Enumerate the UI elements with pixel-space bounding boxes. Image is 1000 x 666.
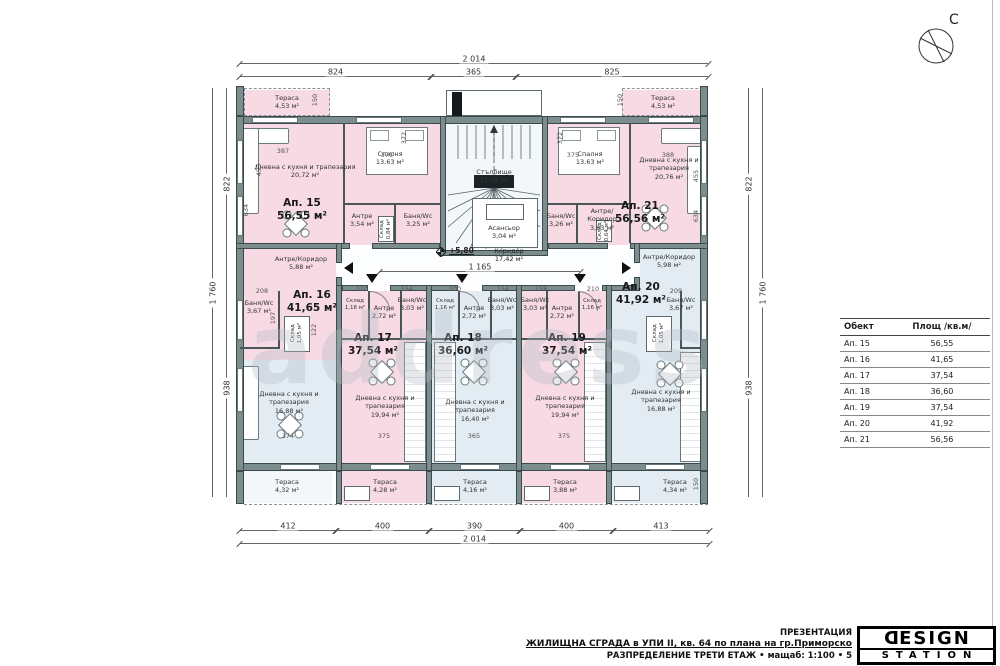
inner-dim: 210: [356, 285, 368, 293]
dim-top-1: 824: [240, 76, 431, 77]
apartment-area: 56,55 м²: [260, 210, 344, 223]
inner-dim: 372: [400, 132, 408, 144]
room-area: 16,88 м²: [622, 405, 700, 413]
dim-top-2: 365: [431, 76, 516, 77]
room-label-stairs: Стълбище 12,58 м²: [454, 168, 534, 185]
inner-dim: 197: [269, 312, 277, 324]
dim-label: 938: [745, 377, 754, 398]
room-name: Спалня: [555, 150, 625, 158]
room-area: 4,32 м²: [256, 486, 318, 494]
room-name: Коридор: [480, 247, 538, 255]
inner-dim: 455: [692, 170, 700, 182]
dim-label: 2 014: [460, 535, 489, 544]
titleblock-sheet: РАЗПРЕДЕЛЕНИЕ ТРЕТИ ЕТАЖ • мащаб: 1:100 …: [452, 651, 852, 661]
room-area: 2,72 м²: [366, 312, 402, 320]
room-label-storage-15: Склад 0,84 м²: [379, 214, 393, 244]
dim-label: 822: [223, 173, 232, 194]
room-area: 17,42 м²: [480, 255, 538, 263]
room-label-living-15: Дневна с кухня и трапезария 20,72 м²: [252, 163, 358, 180]
partition-wall: [343, 203, 440, 205]
dining-table-icon: [457, 355, 491, 389]
inner-dim: 455: [255, 164, 263, 176]
window: [237, 368, 243, 412]
legend-header-area: Площ /кв.м/: [894, 319, 990, 336]
room-name: Антре/Коридор: [270, 255, 332, 263]
dim-top-3: 825: [516, 76, 708, 77]
compass-north-label: С: [949, 12, 959, 28]
room-label-corridor: Коридор 17,42 м²: [480, 247, 538, 264]
wall-segment: [630, 243, 708, 249]
wall-segment: [606, 471, 612, 504]
dim-right-1: 822: [748, 88, 749, 279]
room-area: 2,72 м²: [544, 312, 580, 320]
room-label-terrace-21: Тераса 4,53 м²: [628, 94, 698, 111]
room-label-antre-15: Антре 3,54 м²: [344, 212, 380, 229]
entry-arrow-icon: [344, 262, 353, 274]
apartment-19-label: Ап. 19 37,54 м²: [538, 332, 596, 358]
room-area: 16,40 м²: [438, 415, 512, 423]
room-name: Тераса: [256, 478, 318, 486]
dim-label: 822: [745, 173, 754, 194]
table-row: Ап. 1556,55: [840, 336, 990, 352]
inner-dim: 122: [310, 324, 318, 336]
room-name: Асансьор: [476, 224, 532, 232]
dim-label: 825: [601, 68, 622, 77]
room-area: 3,03 м²: [487, 304, 517, 312]
room-name: Баня/Wc: [660, 296, 702, 304]
entry-arrow-icon: [622, 262, 631, 274]
cell-area: 41,65: [894, 352, 990, 368]
inner-dim: 375: [558, 432, 570, 440]
room-label-storage-16: Склад 1,05 м²: [290, 318, 304, 348]
room-name: Дневна с кухня и трапезария: [348, 394, 422, 411]
dim-right-2: 938: [748, 279, 749, 497]
room-area: 4,28 м²: [356, 486, 414, 494]
inner-dim: 158: [535, 285, 547, 293]
room-name: Антре: [344, 212, 380, 220]
room-name: Тераса: [536, 478, 594, 486]
titleblock-project: ЖИЛИЩНА СГРАДА в УПИ II, кв. 64 по плана…: [452, 639, 852, 649]
room-area: 3,88 м²: [536, 486, 594, 494]
dim-label: 365: [463, 68, 484, 77]
room-area: 2,72 м²: [456, 312, 492, 320]
apartment-id: Ап. 18: [434, 332, 492, 345]
dim-left-total: 1 760: [212, 88, 213, 497]
cell-apartment: Ап. 16: [840, 352, 894, 368]
inner-dim: 150: [311, 94, 319, 106]
dining-table-icon: [653, 357, 687, 391]
partition-wall: [240, 347, 280, 349]
titleblock-presentation: ПРЕЗЕНТАЦИЯ: [452, 628, 852, 638]
terrace-door: [280, 464, 320, 470]
apartment-area: 37,54 м²: [538, 345, 596, 358]
apartment-id: Ап. 17: [344, 332, 402, 345]
room-label-living-16: Дневна с кухня и трапезария 16,88 м²: [250, 390, 328, 415]
room-name: Дневна с кухня и трапезария: [250, 390, 328, 407]
cell-apartment: Ап. 18: [840, 384, 894, 400]
room-label-living-17: Дневна с кухня и трапезария 19,94 м²: [348, 394, 422, 419]
apartment-area: 56,56 м²: [600, 213, 680, 226]
room-area: 12,58 м²: [454, 176, 534, 184]
inner-dim: 154: [497, 285, 509, 293]
dim-label: 412: [277, 522, 298, 531]
room-label-bath-17: Баня/Wc 3,03 м²: [397, 296, 427, 313]
room-label-storage-17: Склад 1,16 м²: [341, 298, 369, 312]
window: [252, 117, 298, 123]
apartment-16-label: Ап. 16 41,65 м²: [286, 289, 338, 315]
dim-bottom-5: 413: [613, 530, 709, 531]
wall-segment: [426, 285, 432, 471]
table-row: Ап. 2041,92: [840, 416, 990, 432]
room-area: 1,05 м²: [297, 318, 304, 348]
room-area: 3,54 м²: [344, 220, 380, 228]
room-label-antre-19: Антре 2,72 м²: [544, 304, 580, 321]
cell-area: 41,92: [894, 416, 990, 432]
inner-dim: 387: [277, 147, 289, 155]
window: [648, 117, 694, 123]
inner-dim: 210: [587, 285, 599, 293]
room-area: 19,94 м²: [528, 411, 602, 419]
entry-arrow-icon: [574, 274, 586, 283]
room-name: Тераса: [356, 478, 414, 486]
room-area: 20,72 м²: [252, 171, 358, 179]
room-area: 3,25 м²: [398, 220, 438, 228]
cell-apartment: Ап. 19: [840, 400, 894, 416]
room-area: 0,84 м²: [386, 214, 393, 244]
cell-area: 56,56: [894, 432, 990, 448]
room-label-terrace-18: Тераса 4,16 м²: [446, 478, 504, 495]
room-label-storage-20: Склад 1,05 м²: [652, 318, 666, 348]
dim-label: 400: [556, 522, 577, 531]
room-label-terrace-16: Тераса 4,32 м²: [256, 478, 318, 495]
room-area: 3,26 м²: [546, 220, 576, 228]
wall-segment: [336, 471, 342, 504]
room-label-bath-15: Баня/Wc 3,25 м²: [398, 212, 438, 229]
room-area: 13,63 м²: [555, 158, 625, 166]
logo-design-text: DESIGN: [860, 629, 993, 648]
apartment-id: Ап. 21: [600, 200, 680, 213]
wall-segment: [440, 116, 446, 256]
inner-dim: 365: [468, 432, 480, 440]
wall-segment: [336, 243, 342, 263]
inner-dim: 375: [381, 151, 393, 159]
inner-dim: 388: [662, 151, 674, 159]
table-row: Ап. 1836,60: [840, 384, 990, 400]
room-area: 1,05 м²: [659, 318, 666, 348]
room-area: 13,63 м²: [355, 158, 425, 166]
room-name: Стълбище: [454, 168, 534, 176]
terrace-door: [370, 464, 410, 470]
sheet-border-line: [992, 0, 993, 666]
dim-bottom-4: 400: [520, 530, 613, 531]
cell-apartment: Ап. 15: [840, 336, 894, 352]
window: [237, 140, 243, 184]
inner-dim: 150: [616, 94, 624, 106]
room-label-elevator: Асансьор 3,04 м²: [476, 224, 532, 241]
room-area: 3,04 м²: [476, 232, 532, 240]
table-row: Ап. 1937,54: [840, 400, 990, 416]
room-label-bath-18: Баня/Wc 3,03 м²: [487, 296, 517, 313]
dim-bottom-total: 2 014: [240, 543, 709, 544]
cell-apartment: Ап. 21: [840, 432, 894, 448]
inner-dim: 374: [282, 432, 294, 440]
wall-segment: [700, 86, 708, 116]
room-label-hall-20: Антре/Коридор 5,98 м²: [640, 253, 698, 270]
apartment-id: Ап. 15: [260, 197, 344, 210]
wall-segment: [426, 471, 432, 504]
cell-area: 37,54: [894, 400, 990, 416]
terrace-outline: [244, 504, 708, 505]
dim-label: 413: [650, 522, 671, 531]
room-name: Баня/Wc: [238, 299, 280, 307]
room-area: 3,67 м²: [660, 304, 702, 312]
window: [560, 117, 606, 123]
apartment-17-label: Ап. 17 37,54 м²: [344, 332, 402, 358]
wall-segment: [236, 86, 244, 116]
room-label-hall-16: Антре/Коридор 5,88 м²: [270, 255, 332, 272]
room-name: Тераса: [628, 94, 698, 102]
window: [356, 117, 402, 123]
room-area: 5,98 м²: [640, 261, 698, 269]
apartment-id: Ап. 20: [612, 281, 670, 294]
dim-left-2: 938: [226, 279, 227, 497]
room-area: 3,03 м²: [397, 304, 427, 312]
partition-wall: [680, 347, 700, 349]
dim-label: 390: [464, 522, 485, 531]
dim-left-1: 822: [226, 88, 227, 279]
terrace-door: [550, 464, 590, 470]
dim-right-total: 1 760: [762, 88, 763, 497]
wall-segment: [516, 285, 522, 471]
table-row: Ап. 1641,65: [840, 352, 990, 368]
room-area: 1,16 м²: [431, 305, 459, 312]
partition-wall: [394, 205, 396, 243]
room-name: Баня/Wc: [397, 296, 427, 304]
room-area: 5,88 м²: [270, 263, 332, 271]
dining-table-icon: [549, 355, 583, 389]
terrace-door: [645, 464, 685, 470]
inner-dim: 634: [692, 210, 700, 222]
inner-dim: 209: [670, 287, 682, 295]
room-label-bath-20: Баня/Wc 3,67 м²: [660, 296, 702, 313]
cell-area: 37,54: [894, 368, 990, 384]
inner-dim: 375: [567, 151, 579, 159]
room-label-living-18: Дневна с кухня и трапезария 16,40 м²: [438, 398, 512, 423]
room-area: 16,88 м²: [250, 407, 328, 415]
room-area: 4,16 м²: [446, 486, 504, 494]
wall-segment: [236, 243, 350, 249]
dim-bottom-3: 390: [429, 530, 520, 531]
level-marker-icon: [436, 247, 446, 257]
apartment-15-label: Ап. 15 56,55 м²: [260, 197, 344, 223]
wall-segment: [236, 471, 244, 504]
logo-design-rest: ESIGN: [899, 628, 971, 649]
room-area: 4,53 м²: [628, 102, 698, 110]
room-label-bedroom-21: Спалня 13,63 м²: [555, 150, 625, 167]
room-name: Баня/Wc: [487, 296, 517, 304]
inner-dim: 372: [556, 132, 564, 144]
inner-dim: 375: [378, 432, 390, 440]
room-label-bath-21: Баня/Wc 3,26 м²: [546, 212, 576, 229]
terrace-door: [460, 464, 500, 470]
wall-segment: [606, 285, 612, 471]
inner-dim: 154: [401, 285, 413, 293]
logo-flipped-d: D: [882, 629, 899, 648]
room-area: 1,16 м²: [578, 305, 606, 312]
wall-segment: [516, 471, 522, 504]
room-label-living-20: Дневна с кухня и трапезария 16,88 м²: [622, 388, 700, 413]
room-name: Тераса: [446, 478, 504, 486]
terrace-planter: [614, 486, 640, 501]
design-station-logo: DESIGN STATION: [857, 626, 996, 665]
inner-dim: 634: [242, 204, 250, 216]
entry-arrow-icon: [456, 274, 468, 283]
cell-apartment: Ап. 17: [840, 368, 894, 384]
elevator-cab: [486, 204, 524, 220]
room-name: Баня/Wc: [546, 212, 576, 220]
room-name: Дневна с кухня и трапезария: [438, 398, 512, 415]
window: [701, 196, 707, 236]
table-row: Ап. 1737,54: [840, 368, 990, 384]
room-label-living-19: Дневна с кухня и трапезария 19,94 м²: [528, 394, 602, 419]
room-area: 1,16 м²: [341, 305, 369, 312]
room-label-terrace-17: Тераса 4,28 м²: [356, 478, 414, 495]
floor-plan-sheet: С 2 014 824 365 825 412 400 390 400 413 …: [0, 0, 1000, 666]
dim-label: 938: [223, 377, 232, 398]
dim-label: 1 760: [759, 278, 768, 307]
legend-header-object: Обект: [840, 319, 894, 336]
room-label-storage-18: Склад 1,16 м²: [431, 298, 459, 312]
wall-segment: [236, 116, 708, 124]
room-name: Баня/Wc: [398, 212, 438, 220]
room-name: Антре/Коридор: [640, 253, 698, 261]
area-legend-table: Обект Площ /кв.м/ Ап. 1556,55 Ап. 1641,6…: [840, 318, 990, 448]
apartment-area: 36,60 м²: [434, 345, 492, 358]
entry-arrow-icon: [366, 274, 378, 283]
room-name: Дневна с кухня и трапезария: [622, 388, 700, 405]
room-area: 19,94 м²: [348, 411, 422, 419]
table-row: Ап. 2156,56: [840, 432, 990, 448]
apartment-area: 41,65 м²: [286, 302, 338, 315]
room-name: Дневна с кухня и трапезария: [252, 163, 358, 171]
dim-label: 400: [372, 522, 393, 531]
window: [701, 368, 707, 412]
apartment-id: Ап. 19: [538, 332, 596, 345]
apartment-id: Ап. 16: [286, 289, 338, 302]
dim-label: 1 760: [209, 278, 218, 307]
cell-apartment: Ап. 20: [840, 416, 894, 432]
inner-dim: 150: [692, 478, 700, 490]
apartment-18-label: Ап. 18 36,60 м²: [434, 332, 492, 358]
level-label: +5,80: [449, 246, 474, 255]
room-label-storage-19: Склад 1,16 м²: [578, 298, 606, 312]
apartment-area: 37,54 м²: [344, 345, 402, 358]
logo-station-text: STATION: [860, 648, 993, 662]
cell-area: 56,55: [894, 336, 990, 352]
wall-segment: [542, 116, 548, 256]
dim-bottom-1: 412: [240, 530, 336, 531]
north-compass-icon: С: [916, 6, 972, 68]
entrance-door: [452, 92, 462, 116]
dim-bottom-2: 400: [336, 530, 429, 531]
legend-header-row: Обект Площ /кв.м/: [840, 319, 990, 336]
room-name: Дневна с кухня и трапезария: [528, 394, 602, 411]
inner-dim: 208: [256, 287, 268, 295]
dim-label: 2 014: [460, 55, 489, 64]
dim-label: 824: [325, 68, 346, 77]
apartment-21-label: Ап. 21 56,56 м²: [600, 200, 680, 226]
dining-table-icon: [365, 355, 399, 389]
cell-area: 36,60: [894, 384, 990, 400]
room-label-terrace-19: Тераса 3,88 м²: [536, 478, 594, 495]
room-name: Антре: [544, 304, 580, 312]
dim-corridor: 1 165: [380, 271, 580, 272]
dim-top-total: 2 014: [240, 63, 708, 64]
inner-dim: 200: [449, 285, 461, 293]
